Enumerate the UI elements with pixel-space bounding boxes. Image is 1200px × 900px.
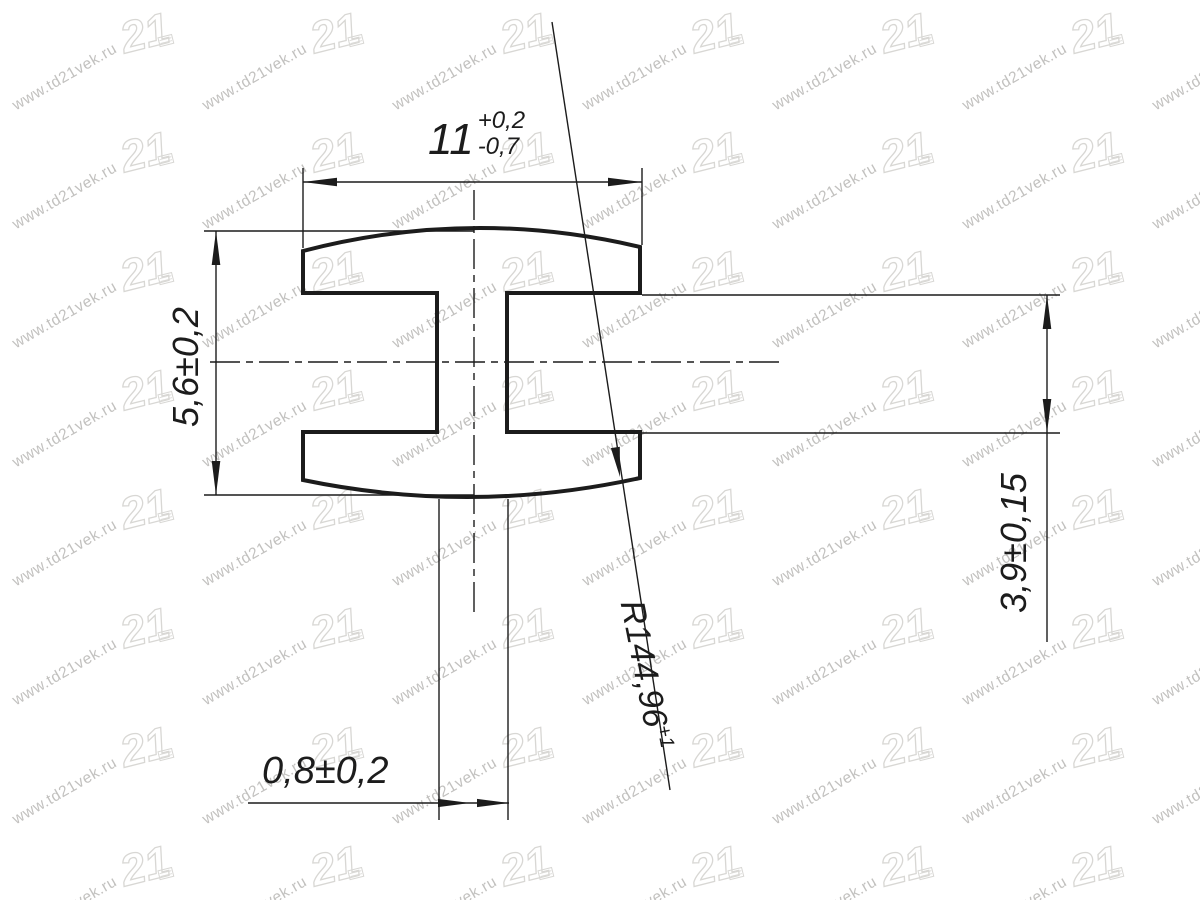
arrowhead-down [212, 461, 221, 495]
technical-drawing-page: www.td21vek.ruwww.td21vek.ruwww.td21vek.… [0, 0, 1200, 900]
dim-left-height-lines [204, 231, 474, 495]
dim-radius-tolerance: +1 [652, 723, 678, 750]
arrowhead [477, 799, 509, 807]
arrowhead-up [212, 231, 221, 265]
dim-height-left: 5,6±0,2 [165, 287, 207, 447]
dim-gap-right: 3,9±0,15 [993, 458, 1035, 628]
tolerance-plus: +0,2 [478, 108, 525, 134]
arrowhead [611, 447, 620, 477]
drawing-canvas [0, 0, 1200, 900]
dim-width-top-tolerances: +0,2 -0,7 [478, 108, 525, 160]
dim-width-top: 11 +0,2 -0,7 [428, 108, 525, 160]
dim-width-top-value: 11 [428, 120, 474, 160]
arrowhead [438, 799, 470, 807]
dim-wall-bottom: 0,8±0,2 [262, 750, 389, 793]
arrowhead-up [1043, 295, 1052, 329]
arrowhead-down [1043, 399, 1052, 433]
arrowhead-right [608, 178, 642, 187]
arrowhead-left [303, 178, 337, 187]
tolerance-minus: -0,7 [478, 134, 519, 160]
centerlines [210, 190, 780, 613]
